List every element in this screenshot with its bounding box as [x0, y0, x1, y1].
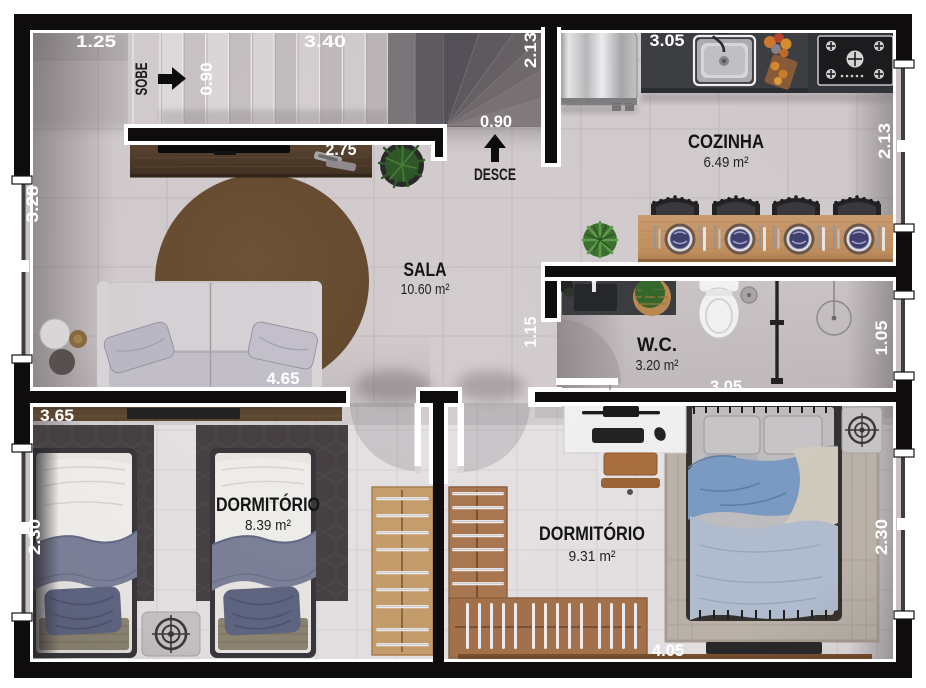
svg-text:2.30: 2.30: [872, 519, 891, 555]
svg-text:3.20 m²: 3.20 m²: [636, 357, 679, 374]
svg-text:DORMITÓRIO: DORMITÓRIO: [216, 494, 320, 516]
svg-text:10.60 m²: 10.60 m²: [401, 281, 450, 298]
svg-text:3.65: 3.65: [40, 406, 74, 425]
svg-text:4.05: 4.05: [652, 641, 684, 660]
svg-text:3.28: 3.28: [23, 186, 42, 223]
svg-text:2.13: 2.13: [521, 32, 540, 68]
svg-text:6.49 m²: 6.49 m²: [704, 154, 749, 171]
svg-text:0.90: 0.90: [480, 112, 512, 131]
svg-text:2.75: 2.75: [326, 140, 357, 159]
svg-text:3.05: 3.05: [650, 31, 685, 50]
svg-text:8.39 m²: 8.39 m²: [245, 517, 291, 534]
svg-text:2.30: 2.30: [25, 519, 44, 555]
svg-text:1.05: 1.05: [872, 321, 891, 356]
svg-text:9.31 m²: 9.31 m²: [569, 548, 616, 565]
svg-text:DESCE: DESCE: [474, 165, 516, 184]
svg-text:W.C.: W.C.: [637, 335, 677, 356]
svg-text:1.15: 1.15: [521, 317, 540, 348]
svg-text:0.90: 0.90: [197, 63, 216, 96]
svg-text:4.65: 4.65: [267, 369, 300, 388]
svg-text:SALA: SALA: [404, 260, 447, 281]
svg-text:DORMITÓRIO: DORMITÓRIO: [539, 523, 645, 545]
svg-text:2.13: 2.13: [875, 123, 894, 159]
svg-text:3.40: 3.40: [304, 32, 346, 51]
svg-text:3.05: 3.05: [710, 377, 742, 396]
svg-text:SOBE: SOBE: [132, 63, 151, 96]
svg-text:COZINHA: COZINHA: [688, 132, 764, 153]
svg-text:1.25: 1.25: [76, 32, 116, 51]
